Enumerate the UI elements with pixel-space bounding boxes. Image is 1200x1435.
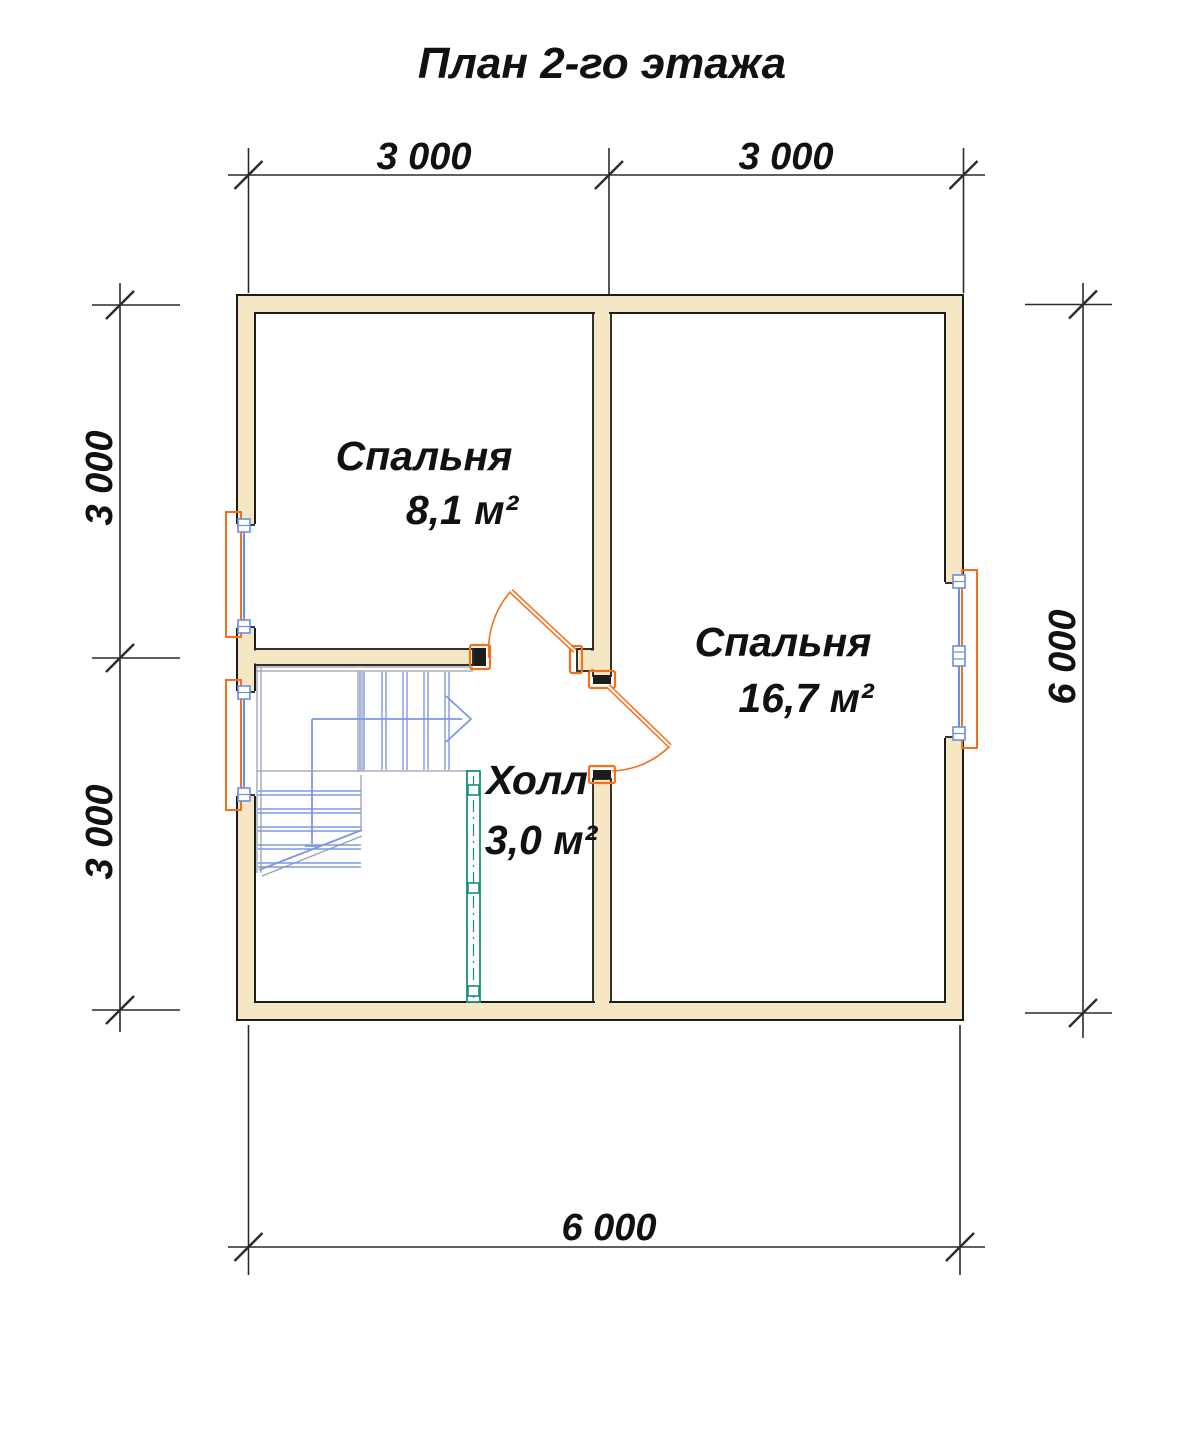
floor-plan-page: План 2-го этажа — [0, 0, 1200, 1435]
room-area: 8,1 м² — [406, 487, 520, 533]
staircase-icon — [256, 667, 473, 876]
stair-railing-icon — [467, 771, 480, 1002]
page-title: План 2-го этажа — [418, 39, 786, 88]
doors — [489, 591, 670, 771]
dimension-top — [228, 148, 985, 294]
dimension-left — [92, 283, 180, 1032]
room-name: Холл — [484, 757, 588, 803]
dimension-label-left-2: 3 000 — [79, 784, 121, 879]
stair-direction-arrow — [259, 696, 471, 870]
dimension-label-top-1: 3 000 — [376, 136, 471, 178]
dimension-label-bottom: 6 000 — [561, 1207, 656, 1249]
room-bedroom2: Спальня 16,7 м² — [695, 619, 875, 721]
room-name: Спальня — [336, 433, 513, 479]
interior-walls — [250, 311, 615, 1004]
room-area: 16,7 м² — [738, 675, 875, 721]
room-hall: Холл 3,0 м² — [484, 757, 598, 863]
room-name: Спальня — [695, 619, 872, 665]
dimension-label-right: 6 000 — [1042, 609, 1084, 704]
floor-plan-drawing: План 2-го этажа — [0, 0, 1200, 1435]
door-bedroom1-icon — [489, 591, 575, 658]
dimension-label-top-2: 3 000 — [738, 136, 833, 178]
room-area: 3,0 м² — [485, 817, 599, 863]
dimension-label-left-1: 3 000 — [79, 430, 121, 525]
room-bedroom1: Спальня 8,1 м² — [336, 433, 520, 533]
door-bedroom2-icon — [608, 686, 670, 771]
